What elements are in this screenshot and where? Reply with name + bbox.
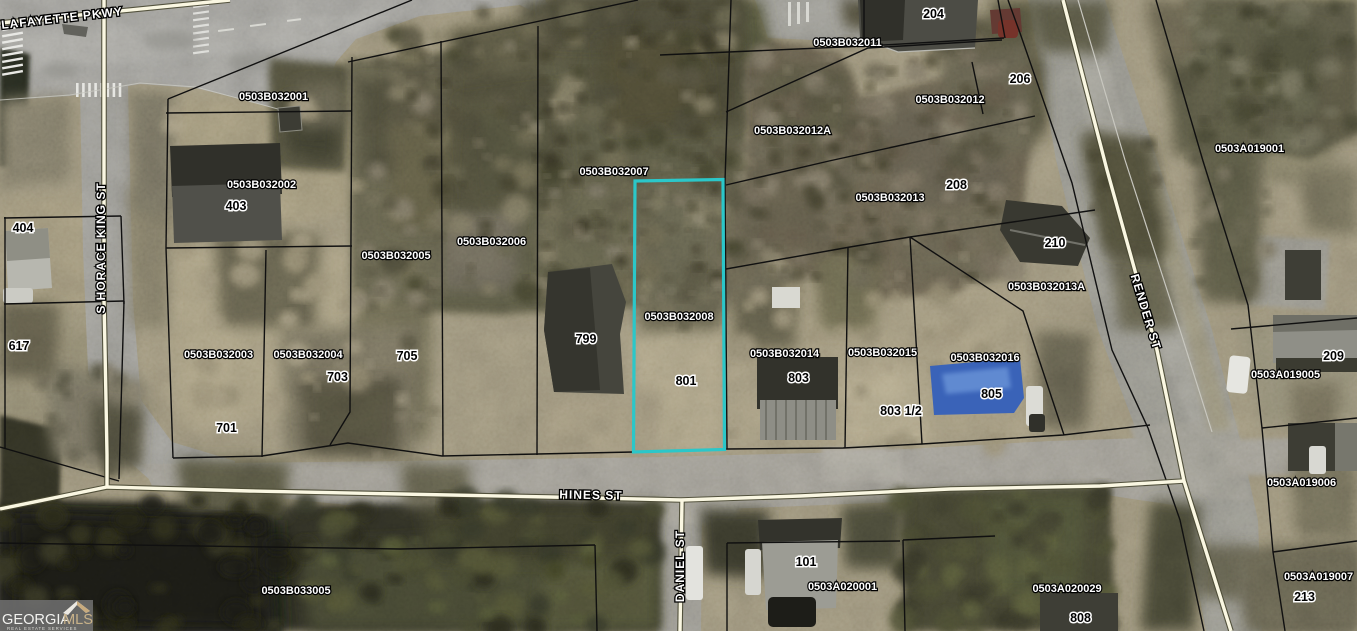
svg-text:0503B032003: 0503B032003 [184, 349, 253, 361]
svg-text:209: 209 [1323, 349, 1344, 363]
svg-text:0503B033005: 0503B033005 [261, 585, 330, 597]
svg-text:0503B032011: 0503B032011 [813, 37, 882, 49]
svg-text:0503B032016: 0503B032016 [950, 352, 1019, 364]
svg-text:206: 206 [1010, 72, 1031, 86]
svg-text:701: 701 [216, 421, 237, 435]
svg-text:0503B032001: 0503B032001 [239, 91, 308, 103]
svg-text:0503B032004: 0503B032004 [273, 349, 343, 361]
svg-text:REAL ESTATE SERVICES: REAL ESTATE SERVICES [7, 626, 77, 631]
svg-text:404: 404 [13, 221, 34, 235]
svg-text:0503A020029: 0503A020029 [1032, 583, 1101, 595]
svg-text:0503B032013: 0503B032013 [855, 192, 924, 204]
svg-text:101: 101 [796, 555, 817, 569]
svg-text:0503A019005: 0503A019005 [1251, 369, 1320, 381]
svg-text:805: 805 [981, 387, 1002, 401]
svg-text:0503B032005: 0503B032005 [361, 250, 430, 262]
svg-text:208: 208 [946, 178, 967, 192]
svg-text:0503B032013A: 0503B032013A [1008, 281, 1085, 293]
svg-text:0503B032012: 0503B032012 [915, 94, 984, 106]
svg-text:0503A019001: 0503A019001 [1215, 143, 1284, 155]
svg-text:204: 204 [923, 7, 944, 21]
svg-text:0503B032007: 0503B032007 [579, 166, 648, 178]
svg-text:0503B032014: 0503B032014 [750, 348, 820, 360]
svg-text:213: 213 [1294, 590, 1315, 604]
svg-text:803: 803 [788, 371, 809, 385]
svg-text:0503B032012A: 0503B032012A [754, 125, 831, 137]
svg-text:617: 617 [9, 339, 30, 353]
svg-text:0503A019006: 0503A019006 [1267, 477, 1336, 489]
svg-text:0503A020001: 0503A020001 [808, 581, 877, 593]
svg-text:799: 799 [576, 332, 597, 346]
svg-text:DANIEL ST: DANIEL ST [673, 530, 687, 602]
svg-text:0503B032008: 0503B032008 [644, 311, 713, 323]
svg-text:0503B032002: 0503B032002 [227, 179, 296, 191]
svg-text:S HORACE KING ST: S HORACE KING ST [94, 182, 108, 313]
svg-text:705: 705 [397, 349, 418, 363]
svg-text:HINES ST: HINES ST [559, 487, 623, 502]
svg-text:403: 403 [226, 199, 247, 213]
svg-text:808: 808 [1070, 611, 1091, 625]
svg-text:210: 210 [1045, 236, 1066, 250]
svg-text:703: 703 [327, 370, 348, 384]
svg-text:803 1/2: 803 1/2 [880, 404, 922, 418]
svg-text:0503A019007: 0503A019007 [1284, 571, 1353, 583]
svg-text:801: 801 [676, 374, 697, 388]
svg-text:0503B032006: 0503B032006 [457, 236, 526, 248]
svg-text:0503B032015: 0503B032015 [848, 347, 917, 359]
